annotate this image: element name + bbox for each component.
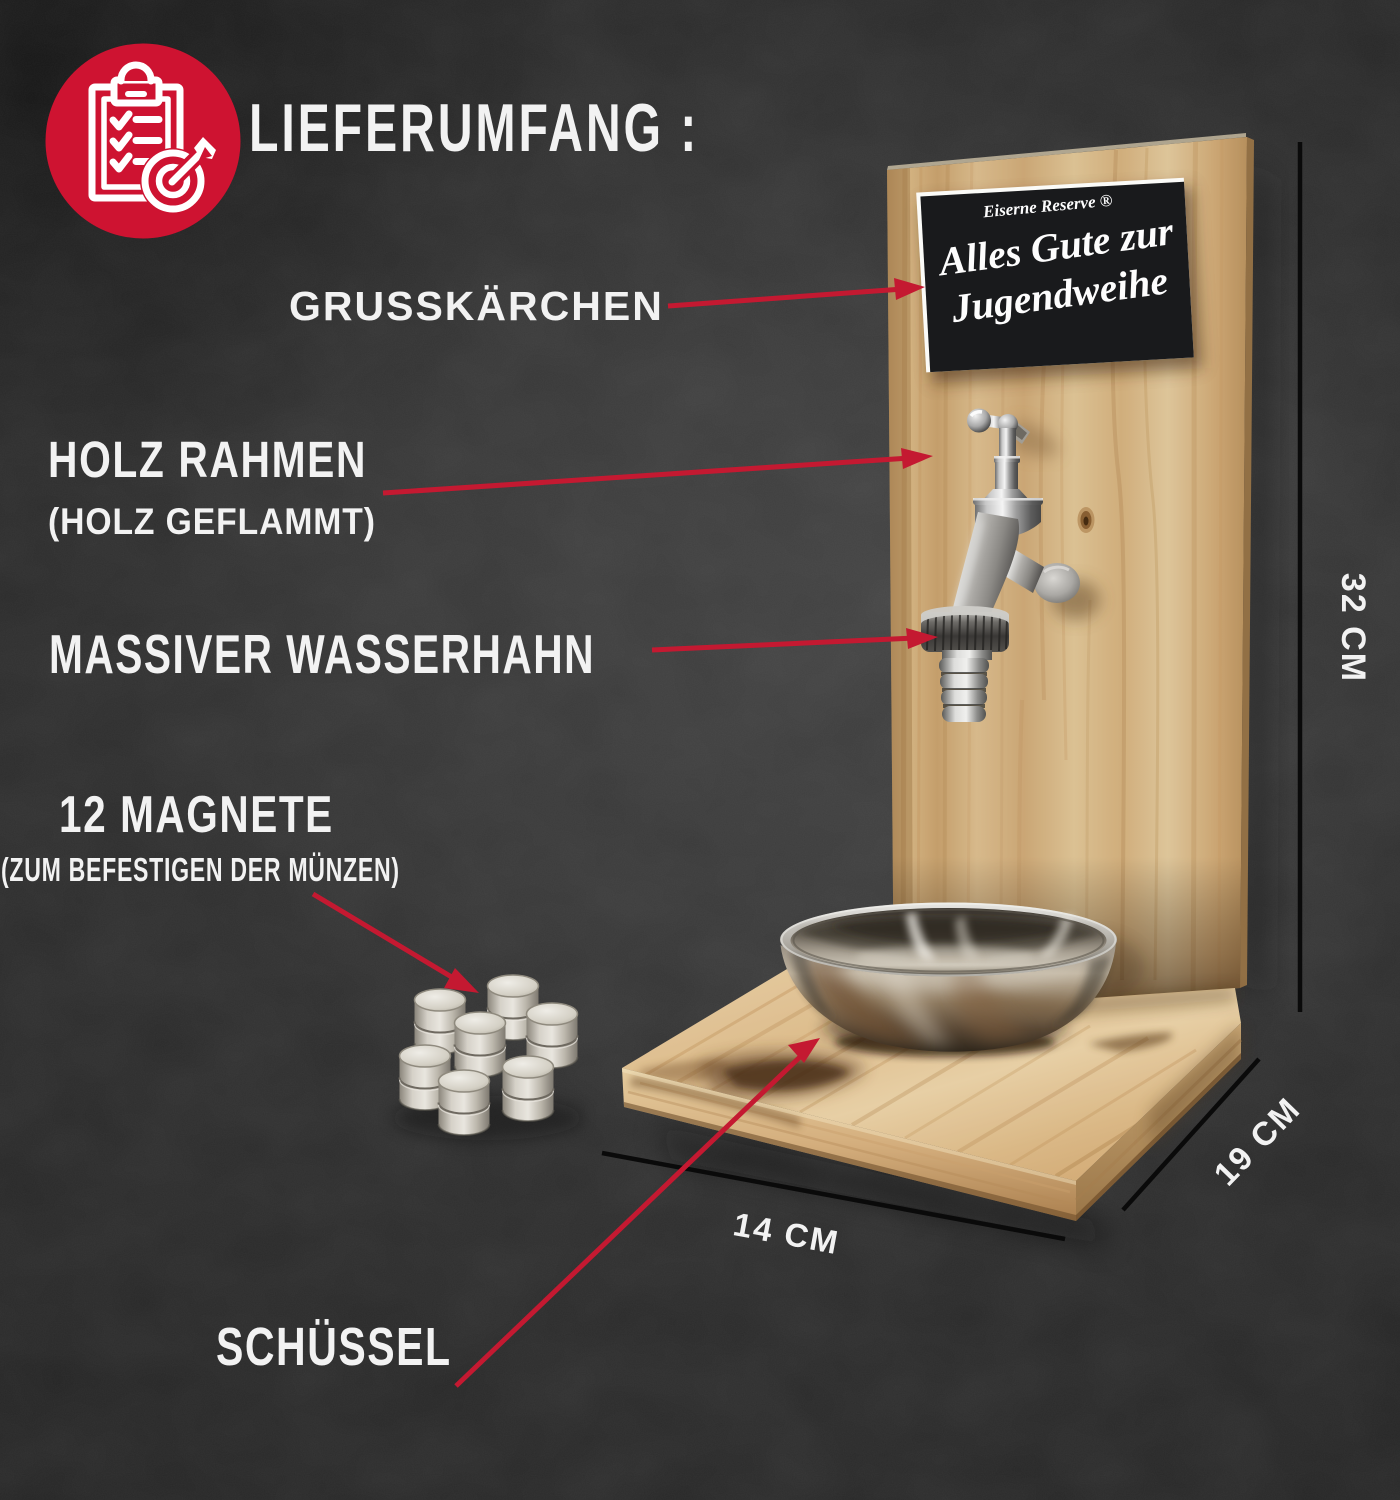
svg-text:19 CM: 19 CM	[1206, 1090, 1307, 1193]
svg-text:32 CM: 32 CM	[1334, 573, 1372, 683]
svg-text:14 CM: 14 CM	[730, 1205, 842, 1261]
